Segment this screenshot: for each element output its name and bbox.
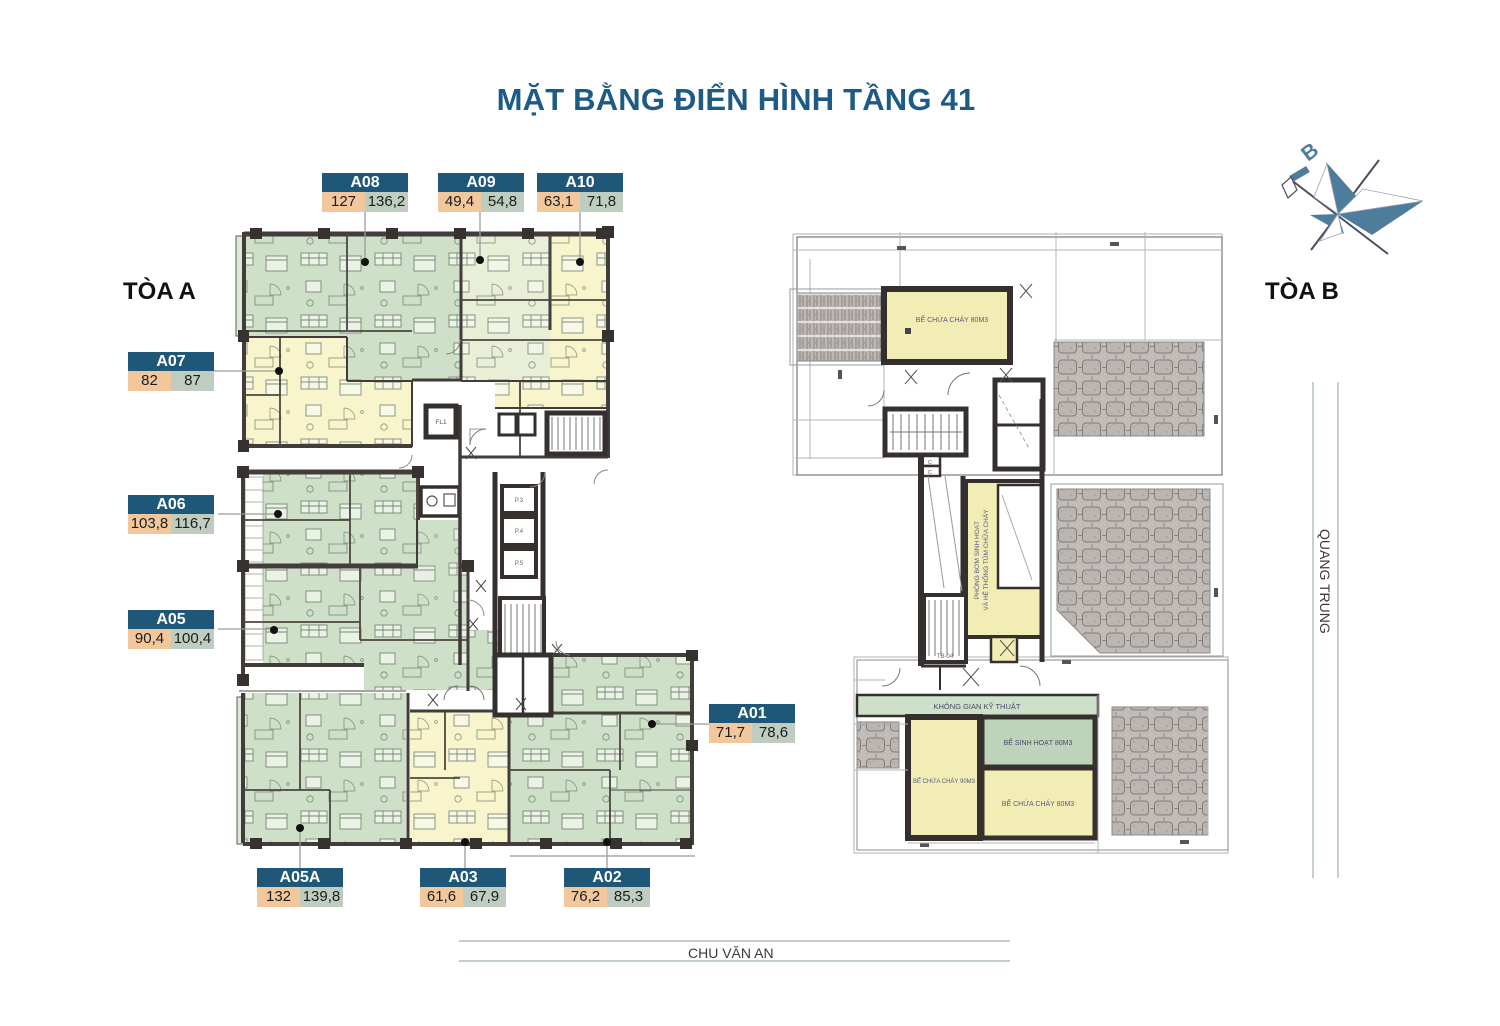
svg-text:BỂ CHỨA CHÁY 90M3: BỂ CHỨA CHÁY 90M3 (913, 778, 976, 785)
svg-text:BỂ CHỨA CHÁY 80M3: BỂ CHỨA CHÁY 80M3 (916, 315, 988, 324)
svg-text:P.4: P.4 (515, 529, 524, 535)
svg-text:C: C (928, 470, 932, 476)
svg-text:B: B (1297, 138, 1323, 165)
svg-text:PHÒNG BƠM SINH HOẠT: PHÒNG BƠM SINH HOẠT (972, 521, 981, 599)
svg-text:BỂ CHỨA CHÁY 80M3: BỂ CHỨA CHÁY 80M3 (1002, 799, 1074, 808)
svg-text:P.5: P.5 (515, 561, 524, 567)
svg-text:P.3: P.3 (515, 498, 524, 504)
svg-text:KHÔNG GIAN KỸ THUẬT: KHÔNG GIAN KỸ THUẬT (934, 702, 1021, 711)
svg-text:BỂ SINH HOẠT 80M3: BỂ SINH HOẠT 80M3 (1004, 738, 1073, 747)
svg-text:FL1: FL1 (435, 419, 447, 426)
svg-text:TB-04: TB-04 (937, 654, 954, 660)
svg-text:C: C (928, 460, 932, 466)
